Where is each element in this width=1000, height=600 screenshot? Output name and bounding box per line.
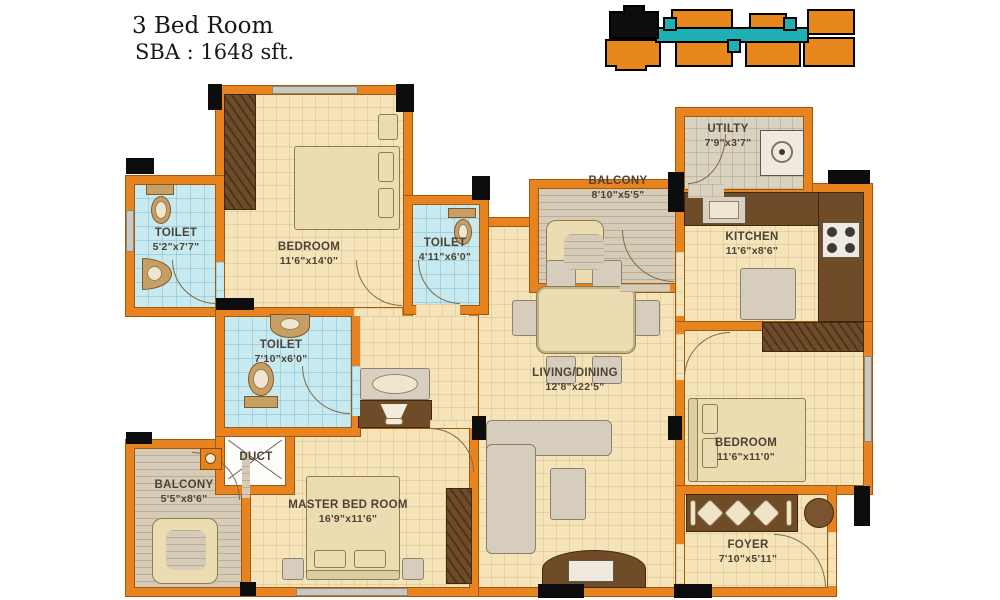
- keyplan-highlighted-unit: [610, 6, 658, 38]
- kitchen-sink-inner: [709, 201, 739, 219]
- pillow-icon: [702, 404, 718, 434]
- balcony-top-label: BALCONY8'10"x5'5": [589, 174, 648, 203]
- keyplan-block: [808, 10, 854, 34]
- wardrobe-icon: [762, 322, 864, 352]
- toilet-bowl-inner: [253, 369, 269, 389]
- window: [296, 588, 408, 596]
- living-dining-label: LIVING/DINING12'8"x22'5": [532, 366, 618, 395]
- column-marker: [828, 170, 870, 184]
- column-marker: [126, 158, 154, 174]
- pillow-icon: [378, 152, 394, 182]
- tv-icon: [568, 560, 614, 582]
- toilet-tank-icon: [244, 396, 278, 408]
- wardrobe-icon: [446, 488, 472, 584]
- column-marker: [126, 432, 152, 444]
- burner-icon: [845, 227, 855, 237]
- location-key-plan: [600, 2, 858, 72]
- keyplan-corridor: [664, 18, 676, 30]
- door-opening: [430, 420, 474, 428]
- coffee-table-icon: [550, 468, 586, 520]
- washing-machine-dot: [779, 149, 785, 155]
- pillow-icon: [354, 550, 386, 568]
- column-cap-circle: [205, 453, 216, 464]
- column-marker: [208, 84, 222, 110]
- door-opening: [620, 284, 670, 292]
- window: [864, 356, 872, 442]
- plan-area-subtitle: SBA : 1648 sft.: [135, 41, 294, 64]
- door-opening: [352, 366, 360, 416]
- headboard: [306, 570, 400, 580]
- duct-label: DUCT: [239, 450, 272, 465]
- wardrobe-icon: [224, 94, 256, 210]
- washbasin-inner: [280, 318, 300, 330]
- column-marker: [396, 84, 414, 112]
- toilet-tank-icon: [146, 184, 174, 195]
- washbasin-inner: [147, 266, 162, 281]
- balcony-seat-cut: [564, 234, 604, 270]
- toilet-tank-icon: [448, 208, 476, 218]
- master-bedroom-label: MASTER BED ROOM16'9"x11'6": [288, 498, 408, 527]
- passage-opening: [676, 252, 684, 316]
- toilet1-label: TOILET5'2"x7'7": [153, 226, 200, 255]
- side-table-icon: [378, 114, 398, 140]
- keyplan-corridor: [784, 18, 796, 30]
- column-marker: [216, 298, 254, 310]
- column-cap: [200, 448, 222, 470]
- sofa-icon: [486, 444, 536, 554]
- burner-icon: [827, 243, 837, 253]
- wash-counter-basin: [372, 374, 418, 394]
- passage-opening: [676, 544, 684, 588]
- column-marker: [854, 486, 870, 526]
- window: [126, 210, 134, 252]
- column-marker: [668, 416, 682, 440]
- keyplan-block: [804, 38, 854, 66]
- toilet3-label: TOILET7'10"x6'0": [255, 338, 308, 367]
- burner-icon: [827, 227, 837, 237]
- door-opening: [354, 308, 402, 316]
- door-opening: [676, 334, 684, 380]
- window: [272, 86, 358, 94]
- column-marker: [472, 176, 490, 200]
- plan-title: 3 Bed Room: [132, 14, 273, 39]
- headboard: [688, 398, 698, 482]
- fridge-icon: [740, 268, 796, 320]
- bedroom2-label: BEDROOM11'6"x11'0": [715, 436, 777, 465]
- dining-table-icon: [536, 286, 636, 354]
- nightstand-icon: [402, 558, 424, 580]
- column-marker: [538, 584, 584, 598]
- column-marker: [240, 582, 256, 596]
- toilet-bowl-inner: [155, 201, 167, 219]
- keyplan-block: [676, 40, 732, 66]
- burner-icon: [845, 243, 855, 253]
- floor-plan-page: 3 Bed Room SBA : 1648 sft.: [0, 0, 1000, 600]
- keyplan-block: [746, 40, 800, 66]
- console-end: [690, 500, 696, 526]
- door-opening: [688, 184, 724, 198]
- column-marker: [668, 172, 684, 212]
- bedroom1-label: BEDROOM11'6"x14'0": [278, 240, 340, 269]
- keyplan-block: [606, 40, 660, 70]
- foyer-label: FOYER7'10"x5'11": [719, 538, 778, 567]
- balcony-bottom-label: BALCONY5'5"x8'6": [155, 478, 214, 507]
- dining-chair-icon: [512, 300, 538, 336]
- console-end: [786, 500, 792, 526]
- door-opening: [416, 304, 460, 316]
- dining-chair-icon: [634, 300, 660, 336]
- kitchen-label: KITCHEN11'6"x8'6": [725, 230, 778, 259]
- keyplan-corridor: [728, 40, 740, 52]
- main-entrance-opening: [828, 532, 836, 586]
- pillow-icon: [378, 188, 394, 218]
- column-marker: [674, 584, 712, 598]
- pillow-icon: [314, 550, 346, 568]
- utility-label: UTILTY7'9"x3'7": [705, 122, 752, 151]
- nightstand-icon: [282, 558, 304, 580]
- balcony-seat-cut: [166, 530, 206, 570]
- pedestal-base: [385, 418, 403, 425]
- toilet2-label: TOILET4'11"x6'0": [419, 236, 471, 265]
- foyer-stool-icon: [804, 498, 834, 528]
- column-marker: [472, 416, 486, 440]
